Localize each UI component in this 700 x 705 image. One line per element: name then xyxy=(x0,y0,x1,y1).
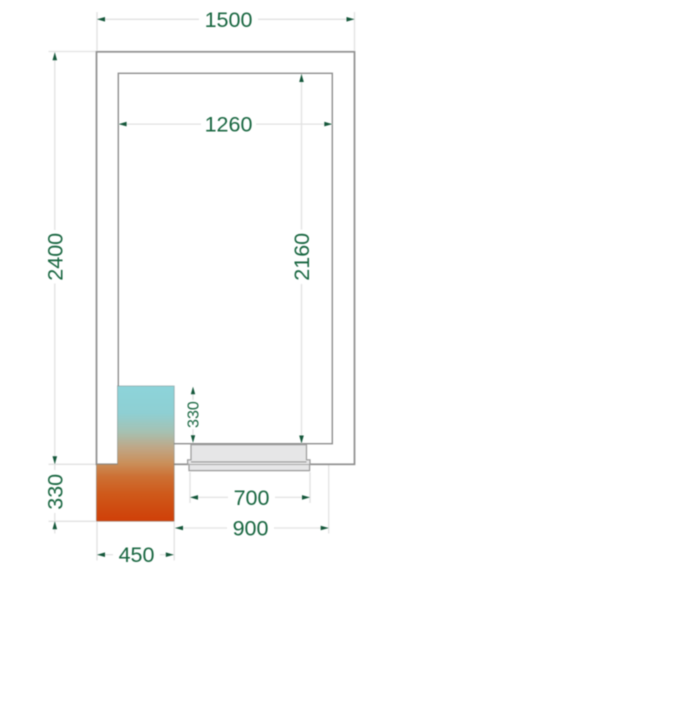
svg-text:450: 450 xyxy=(119,543,155,567)
svg-text:2160: 2160 xyxy=(290,233,314,281)
svg-text:330: 330 xyxy=(186,401,203,428)
svg-text:2400: 2400 xyxy=(43,233,67,281)
svg-text:700: 700 xyxy=(234,486,270,510)
svg-text:1500: 1500 xyxy=(205,8,253,32)
svg-text:1260: 1260 xyxy=(205,113,253,137)
svg-text:330: 330 xyxy=(43,474,67,510)
svg-text:900: 900 xyxy=(233,517,269,541)
